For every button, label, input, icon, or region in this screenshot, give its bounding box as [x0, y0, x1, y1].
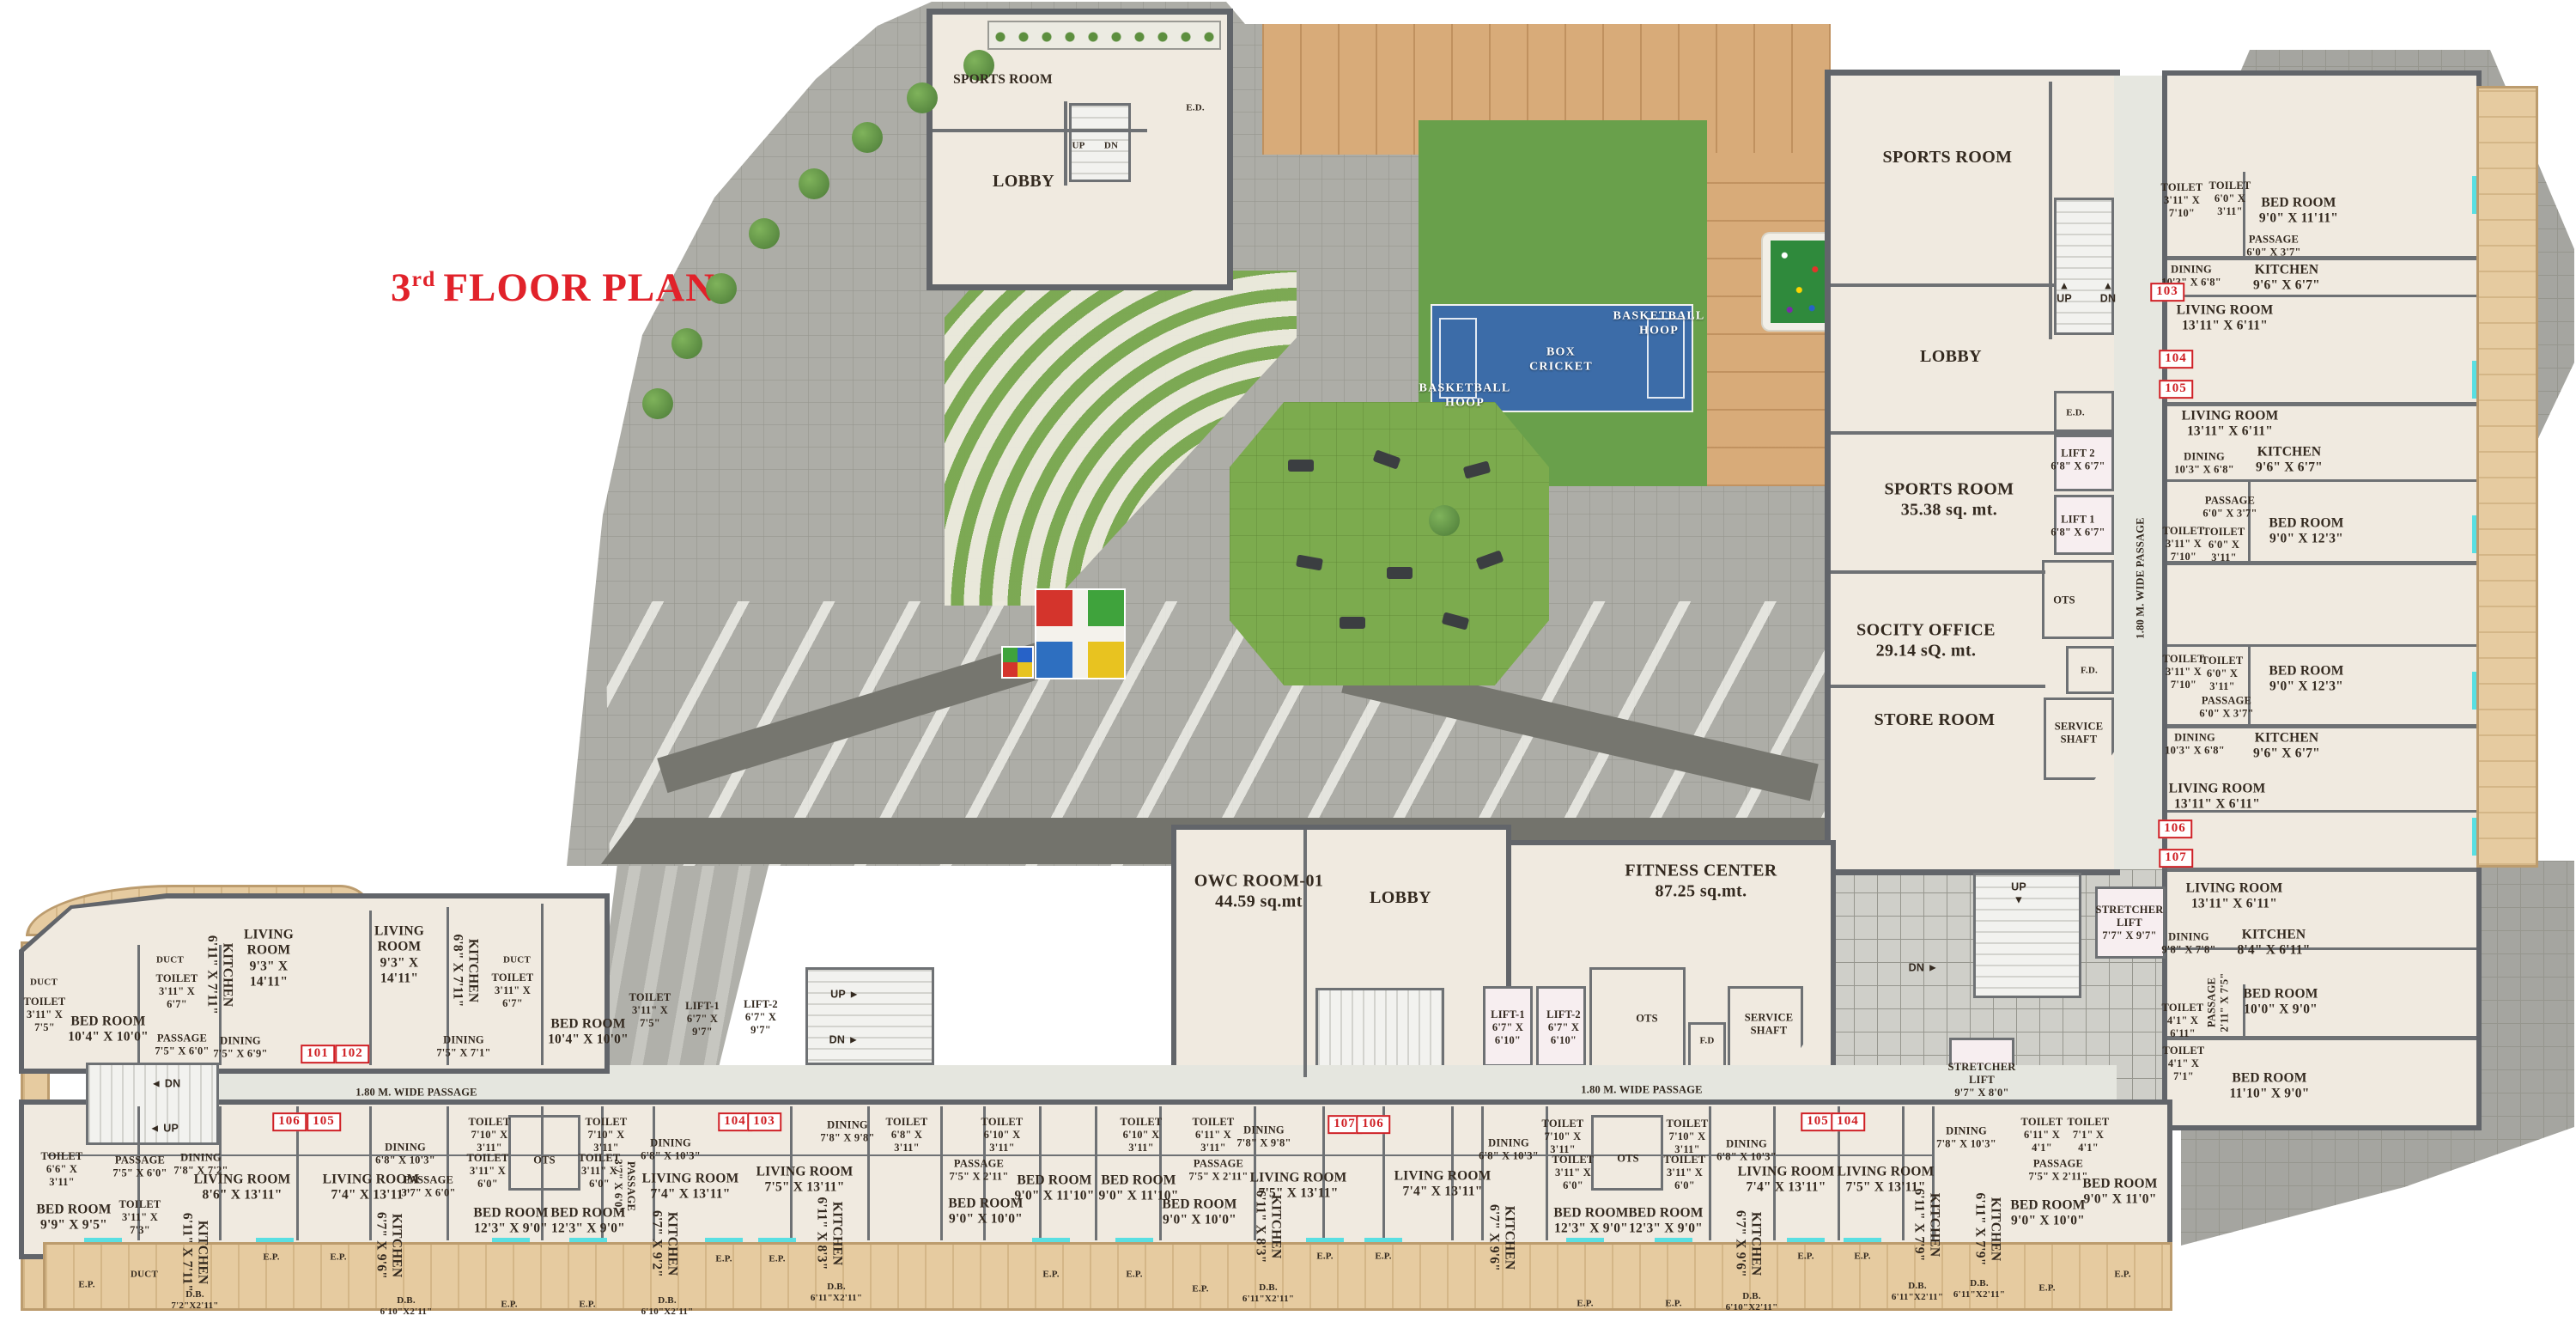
room-label: LIVING ROOM 7'5" X 13'11"	[756, 1165, 854, 1197]
room-label: D.B. 7'2"X2'11"	[171, 1289, 218, 1312]
room-label: DINING 9'8" X 7'8"	[2161, 930, 2215, 956]
room-label: TOILET 7'10" X 3'11"	[1542, 1118, 1584, 1155]
room-label: SPORTS ROOM	[1883, 148, 2013, 168]
room-label: SERVICE SHAFT	[1745, 1011, 1794, 1037]
stair-direction-label: UP ►	[830, 989, 860, 1002]
room-label: LIFT 1 6'8" X 6'7"	[2050, 513, 2105, 539]
room-label: LOBBY	[993, 172, 1054, 192]
room-label: TOILET 3'11" X 7'5"	[629, 991, 671, 1029]
room-label: KITCHEN 6'11" X 8'3"	[813, 1197, 845, 1270]
room-label: E.D.	[2066, 408, 2085, 419]
stair-direction-label: ▲ DN	[2100, 279, 2116, 305]
room-label: PASSAGE 3'7" X 6'0"	[401, 1173, 455, 1199]
room-label: DINING 6'8" X 10'3"	[641, 1136, 701, 1162]
room-label: TOILET 4'1" X 6'11"	[2162, 1002, 2204, 1039]
room-label: UP	[1072, 141, 1084, 152]
room-label: TOILET 3'11" X 7'10"	[2163, 653, 2205, 691]
room-label: PASSAGE 7'5" X 6'0"	[155, 1032, 209, 1057]
room-label: KITCHEN 6'11" X 8'3"	[1252, 1190, 1284, 1263]
unit-number-badge: 105	[2159, 380, 2193, 399]
room-label: D.B. 6'10"X2'11"	[641, 1295, 694, 1318]
room-label: KITCHEN 9'6" X 6'7"	[2256, 445, 2323, 477]
room-label: E.P.	[1854, 1252, 1870, 1263]
unit-number-badge: 103	[747, 1112, 781, 1131]
room-label: PASSAGE 7'5" X 6'0"	[112, 1154, 167, 1179]
room-label: TOILET 6'10" X 3'11"	[981, 1116, 1024, 1154]
room-label: D.B. 6'10"X2'11"	[380, 1295, 433, 1318]
room-label: PASSAGE 7'5" X 2'11"	[949, 1157, 1008, 1183]
room-label: LIVING ROOM 13'11" X 6'11"	[2182, 409, 2279, 441]
room-label: PASSAGE 6'0" X 3'7"	[2202, 494, 2257, 520]
room-label: KITCHEN 8'4" X 6'11"	[2237, 928, 2310, 959]
room-label: F.D	[1699, 1036, 1714, 1047]
room-label: PASSAGE 2'11" X 7'5"	[2205, 972, 2231, 1032]
room-label: TOILET 6'11" X 3'11"	[1193, 1116, 1235, 1154]
unit-number-badge: 106	[1356, 1115, 1390, 1134]
room-label: LIVING ROOM 13'11" X 6'11"	[2169, 782, 2266, 813]
room-label: BED ROOM 9'0" X 11'11"	[2259, 196, 2338, 228]
room-label: BED ROOM 12'3" X 9'0"	[473, 1206, 548, 1238]
room-label: BED ROOM 9'0" X 10'0"	[1162, 1197, 1236, 1229]
room-label: TOILET 3'11" X 6'7"	[492, 972, 534, 1009]
unit-number-badge: 106	[272, 1112, 307, 1131]
room-label: D.B. 6'11"X2'11"	[1892, 1281, 1943, 1303]
room-label: LIVING ROOM 9'3" X 14'11"	[374, 923, 424, 986]
room-label: E.P.	[1042, 1270, 1059, 1281]
room-label: BOX CRICKET	[1529, 345, 1593, 374]
stair-direction-label: UP ▼	[2011, 880, 2026, 906]
room-label: KITCHEN 6'11" X 7'9"	[1971, 1192, 2003, 1265]
room-label: 1.80 M. WIDE PASSAGE	[355, 1087, 477, 1099]
room-label: DINING 10'3" X 6'8"	[2165, 731, 2225, 757]
room-label: E.P.	[330, 1252, 346, 1264]
room-label: 1.80 M. WIDE PASSAGE	[2135, 517, 2148, 638]
room-label: BED ROOM 12'3" X 9'0"	[1553, 1206, 1628, 1238]
room-label: D.B. 6'11"X2'11"	[1953, 1278, 2005, 1300]
room-label: DINING 7'8" X 10'3"	[1936, 1124, 1996, 1150]
room-label: LIVING ROOM 13'11" X 6'11"	[2186, 881, 2283, 913]
room-label: E.P.	[263, 1252, 279, 1264]
room-label: KITCHEN 6'8" X 7'11"	[449, 934, 481, 1007]
room-label: STORE ROOM	[1874, 710, 1996, 731]
room-label: LIFT-2 6'7" X 6'10"	[1546, 1008, 1581, 1046]
room-label: LIVING ROOM 9'3" X 14'11"	[244, 927, 294, 990]
room-label: KITCHEN 6'7" X 9'6"	[373, 1212, 404, 1279]
room-label: LIVING ROOM 8'6" X 13'11"	[194, 1173, 291, 1204]
room-label: E.P.	[715, 1254, 732, 1265]
room-label: SPORTS ROOM 35.38 sq. mt.	[1885, 479, 2014, 520]
room-label: BED ROOM 9'0" X 12'3"	[2269, 516, 2343, 548]
room-label: LIFT 2 6'8" X 6'7"	[2050, 447, 2105, 472]
room-label: KITCHEN 6'11" X 7'9"	[1911, 1188, 1942, 1261]
room-label: SOCITY OFFICE 29.14 sQ. mt.	[1856, 620, 1996, 661]
room-label: DUCT	[503, 955, 531, 966]
room-label: E.P.	[1126, 1270, 1142, 1281]
room-label: TOILET 3'11" X 6'0"	[1552, 1154, 1595, 1191]
room-label: DINING 10'3" X 6'8"	[2174, 450, 2234, 476]
room-label: LIVING ROOM 7'4" X 13'11"	[642, 1172, 739, 1203]
room-label: SERVICE SHAFT	[2055, 720, 2104, 746]
room-label: TOILET 6'11" X 4'1"	[2021, 1116, 2063, 1154]
room-label: PASSAGE 7'5" X 2'11"	[2028, 1157, 2087, 1183]
room-label: PASSAGE 6'0" X 3'7"	[2199, 694, 2253, 720]
room-label: DINING 6'8" X 10'3"	[375, 1141, 435, 1166]
room-label: F.D.	[2081, 666, 2098, 677]
room-label: BED ROOM 12'3" X 9'0"	[1628, 1206, 1703, 1238]
room-label: BED ROOM 10'4" X 10'0"	[68, 1014, 149, 1046]
room-label: FITNESS CENTER 87.25 sq.mt.	[1625, 861, 1777, 901]
room-label: E.P.	[769, 1254, 785, 1265]
room-label: E.P.	[2114, 1270, 2130, 1281]
room-label: DINING 6'8" X 10'3"	[1716, 1137, 1777, 1163]
room-label: LOBBY	[1920, 347, 1982, 368]
room-label: E.P.	[1316, 1252, 1333, 1263]
stair-direction-label: DN ►	[829, 1034, 860, 1047]
room-label: E.D.	[1186, 103, 1205, 114]
room-label: STRETCHER LIFT 9'7" X 8'0"	[1948, 1061, 2016, 1099]
room-label: TOILET 7'10" X 3'11"	[469, 1116, 511, 1154]
unit-number-badge: 105	[1801, 1112, 1835, 1131]
room-label: KITCHEN 6'7" X 9'6"	[1485, 1204, 1517, 1271]
room-label: LIFT-1 6'7" X 6'10"	[1491, 1008, 1525, 1046]
room-label: OWC ROOM-01 44.59 sq.mt	[1194, 871, 1324, 911]
room-label: TOILET 7'1" X 4'1"	[2068, 1116, 2110, 1154]
stair-direction-label: ▲ UP	[2057, 279, 2072, 305]
room-label: 1.80 M. WIDE PASSAGE	[1581, 1084, 1702, 1097]
room-label: E.P.	[579, 1300, 595, 1311]
room-label: KITCHEN 6'7" X 9'6"	[1732, 1210, 1764, 1277]
room-label: OTS	[2053, 594, 2075, 607]
room-label: LIFT-1 6'7" X 9'7"	[685, 1000, 720, 1038]
room-label: TOILET 6'0" X 3'11"	[2209, 180, 2251, 217]
room-label: KITCHEN 6'7" X 9'2"	[648, 1210, 680, 1277]
unit-number-badge: 106	[2158, 819, 2192, 838]
room-label: KITCHEN 6'11" X 7'11"	[204, 935, 235, 1014]
room-label: TOILET 3'11" X 6'7"	[156, 972, 198, 1010]
room-label: BED ROOM 10'4" X 10'0"	[548, 1017, 629, 1049]
room-label: TOILET 6'8" X 3'11"	[886, 1116, 928, 1154]
room-label: TOILET 3'11" X 6'0"	[467, 1152, 509, 1190]
room-label: E.P.	[1375, 1252, 1391, 1263]
room-label: TOILET 6'0" X 3'11"	[2202, 655, 2244, 692]
room-label: STRETCHER LIFT 7'7" X 9'7"	[2096, 904, 2164, 941]
room-label: BED ROOM 12'3" X 9'0"	[550, 1206, 625, 1238]
room-label: E.P.	[78, 1280, 94, 1291]
floor-plan-canvas: 3rdFLOOR PLAN SPORTS ROOMLOBBYUPDNE.D.BA…	[0, 0, 2576, 1334]
room-label: D.B. 6'11"X2'11"	[811, 1282, 862, 1304]
labels-layer: SPORTS ROOMLOBBYUPDNE.D.BASKETBALL HOOPB…	[0, 0, 2576, 1334]
room-label: BED ROOM 9'0" X 12'3"	[2269, 664, 2343, 696]
room-label: TOILET 6'10" X 3'11"	[1121, 1116, 1163, 1154]
room-label: E.P.	[2038, 1283, 2055, 1294]
room-label: TOILET 3'11" X 6'0"	[1664, 1154, 1706, 1191]
room-label: BASKETBALL HOOP	[1419, 381, 1511, 410]
room-label: E.P.	[1577, 1299, 1593, 1310]
room-label: DINING 7'8" X 9'8"	[820, 1118, 874, 1144]
room-label: DINING 7'8" X 9'8"	[1236, 1124, 1291, 1149]
room-label: DUCT	[156, 955, 184, 966]
room-label: TOILET 3'11" X 7'10"	[2163, 525, 2205, 563]
room-label: E.P.	[1665, 1299, 1681, 1310]
unit-number-badge: 101	[301, 1045, 335, 1063]
room-label: TOILET 7'10" X 3'11"	[1667, 1118, 1709, 1155]
room-label: PASSAGE 7'5" X 2'11"	[1188, 1157, 1248, 1183]
room-label: E.P.	[1192, 1284, 1208, 1295]
stair-direction-label: ◄ UP	[149, 1123, 179, 1136]
room-label: LOBBY	[1370, 888, 1431, 909]
room-label: DN	[1104, 141, 1118, 152]
room-label: DUCT	[30, 978, 58, 989]
room-label: BED ROOM 9'0" X 11'0"	[2082, 1177, 2157, 1209]
unit-number-badge: 102	[335, 1045, 369, 1063]
unit-number-badge: 103	[2150, 283, 2184, 302]
room-label: BED ROOM 10'0" X 9'0"	[2243, 987, 2318, 1019]
unit-number-badge: 104	[2159, 350, 2193, 369]
room-label: DINING 6'8" X 10'3"	[1479, 1136, 1539, 1162]
room-label: BASKETBALL HOOP	[1613, 309, 1705, 338]
room-label: BED ROOM 11'10" X 9'0"	[2229, 1071, 2309, 1103]
room-label: D.B. 6'10"X2'11"	[1726, 1291, 1778, 1313]
room-label: LIVING ROOM 7'4" X 13'11"	[1394, 1169, 1492, 1201]
room-label: TOILET 6'6" X 3'11"	[41, 1150, 83, 1188]
room-label: DUCT	[131, 1270, 158, 1281]
room-label: LIVING ROOM 7'4" X 13'11"	[1738, 1165, 1835, 1197]
room-label: OTS	[1617, 1153, 1639, 1166]
unit-number-badge: 105	[307, 1112, 341, 1131]
room-label: E.P.	[1797, 1252, 1814, 1263]
room-label: E.P.	[501, 1300, 517, 1311]
room-label: DINING 7'5" X 6'9"	[213, 1034, 267, 1060]
room-label: TOILET 4'1" X 7'1"	[2163, 1045, 2205, 1082]
room-label: LIVING ROOM 13'11" X 6'11"	[2177, 303, 2274, 335]
room-label: BED ROOM 9'0" X 10'0"	[948, 1197, 1023, 1228]
room-label: BED ROOM 9'0" X 11'10"	[1014, 1173, 1094, 1205]
unit-number-badge: 107	[2159, 849, 2193, 868]
room-label: BED ROOM 9'9" X 9'5"	[36, 1203, 111, 1234]
room-label: DINING 7'5" X 7'1"	[436, 1033, 490, 1059]
room-label: TOILET 3'11" X 7'3"	[119, 1198, 161, 1236]
room-label: SPORTS ROOM	[953, 72, 1053, 88]
room-label: LIFT-2 6'7" X 9'7"	[744, 998, 778, 1036]
room-label: TOILET 7'10" X 3'11"	[586, 1116, 628, 1154]
unit-number-badge: 104	[1831, 1112, 1865, 1131]
room-label: D.B. 6'11"X2'11"	[1242, 1282, 1294, 1305]
room-label: PASSAGE 6'0" X 3'7"	[2246, 233, 2300, 259]
room-label: KITCHEN 6'11" X 7'11"	[179, 1213, 210, 1292]
room-label: BED ROOM 9'0" X 10'0"	[2010, 1198, 2085, 1230]
room-label: TOILET 3'11" X 7'10"	[2161, 181, 2203, 219]
room-label: KITCHEN 9'6" X 6'7"	[2253, 731, 2320, 763]
room-label: OTS	[1636, 1013, 1658, 1026]
room-label: KITCHEN 9'6" X 6'7"	[2253, 263, 2320, 295]
room-label: TOILET 3'11" X 7'5"	[24, 996, 66, 1033]
room-label: TOILET 6'0" X 3'11"	[2203, 526, 2245, 563]
stair-direction-label: DN ►	[1909, 962, 1939, 975]
stair-direction-label: ◄ DN	[151, 1078, 181, 1091]
room-label: OTS	[533, 1154, 556, 1167]
